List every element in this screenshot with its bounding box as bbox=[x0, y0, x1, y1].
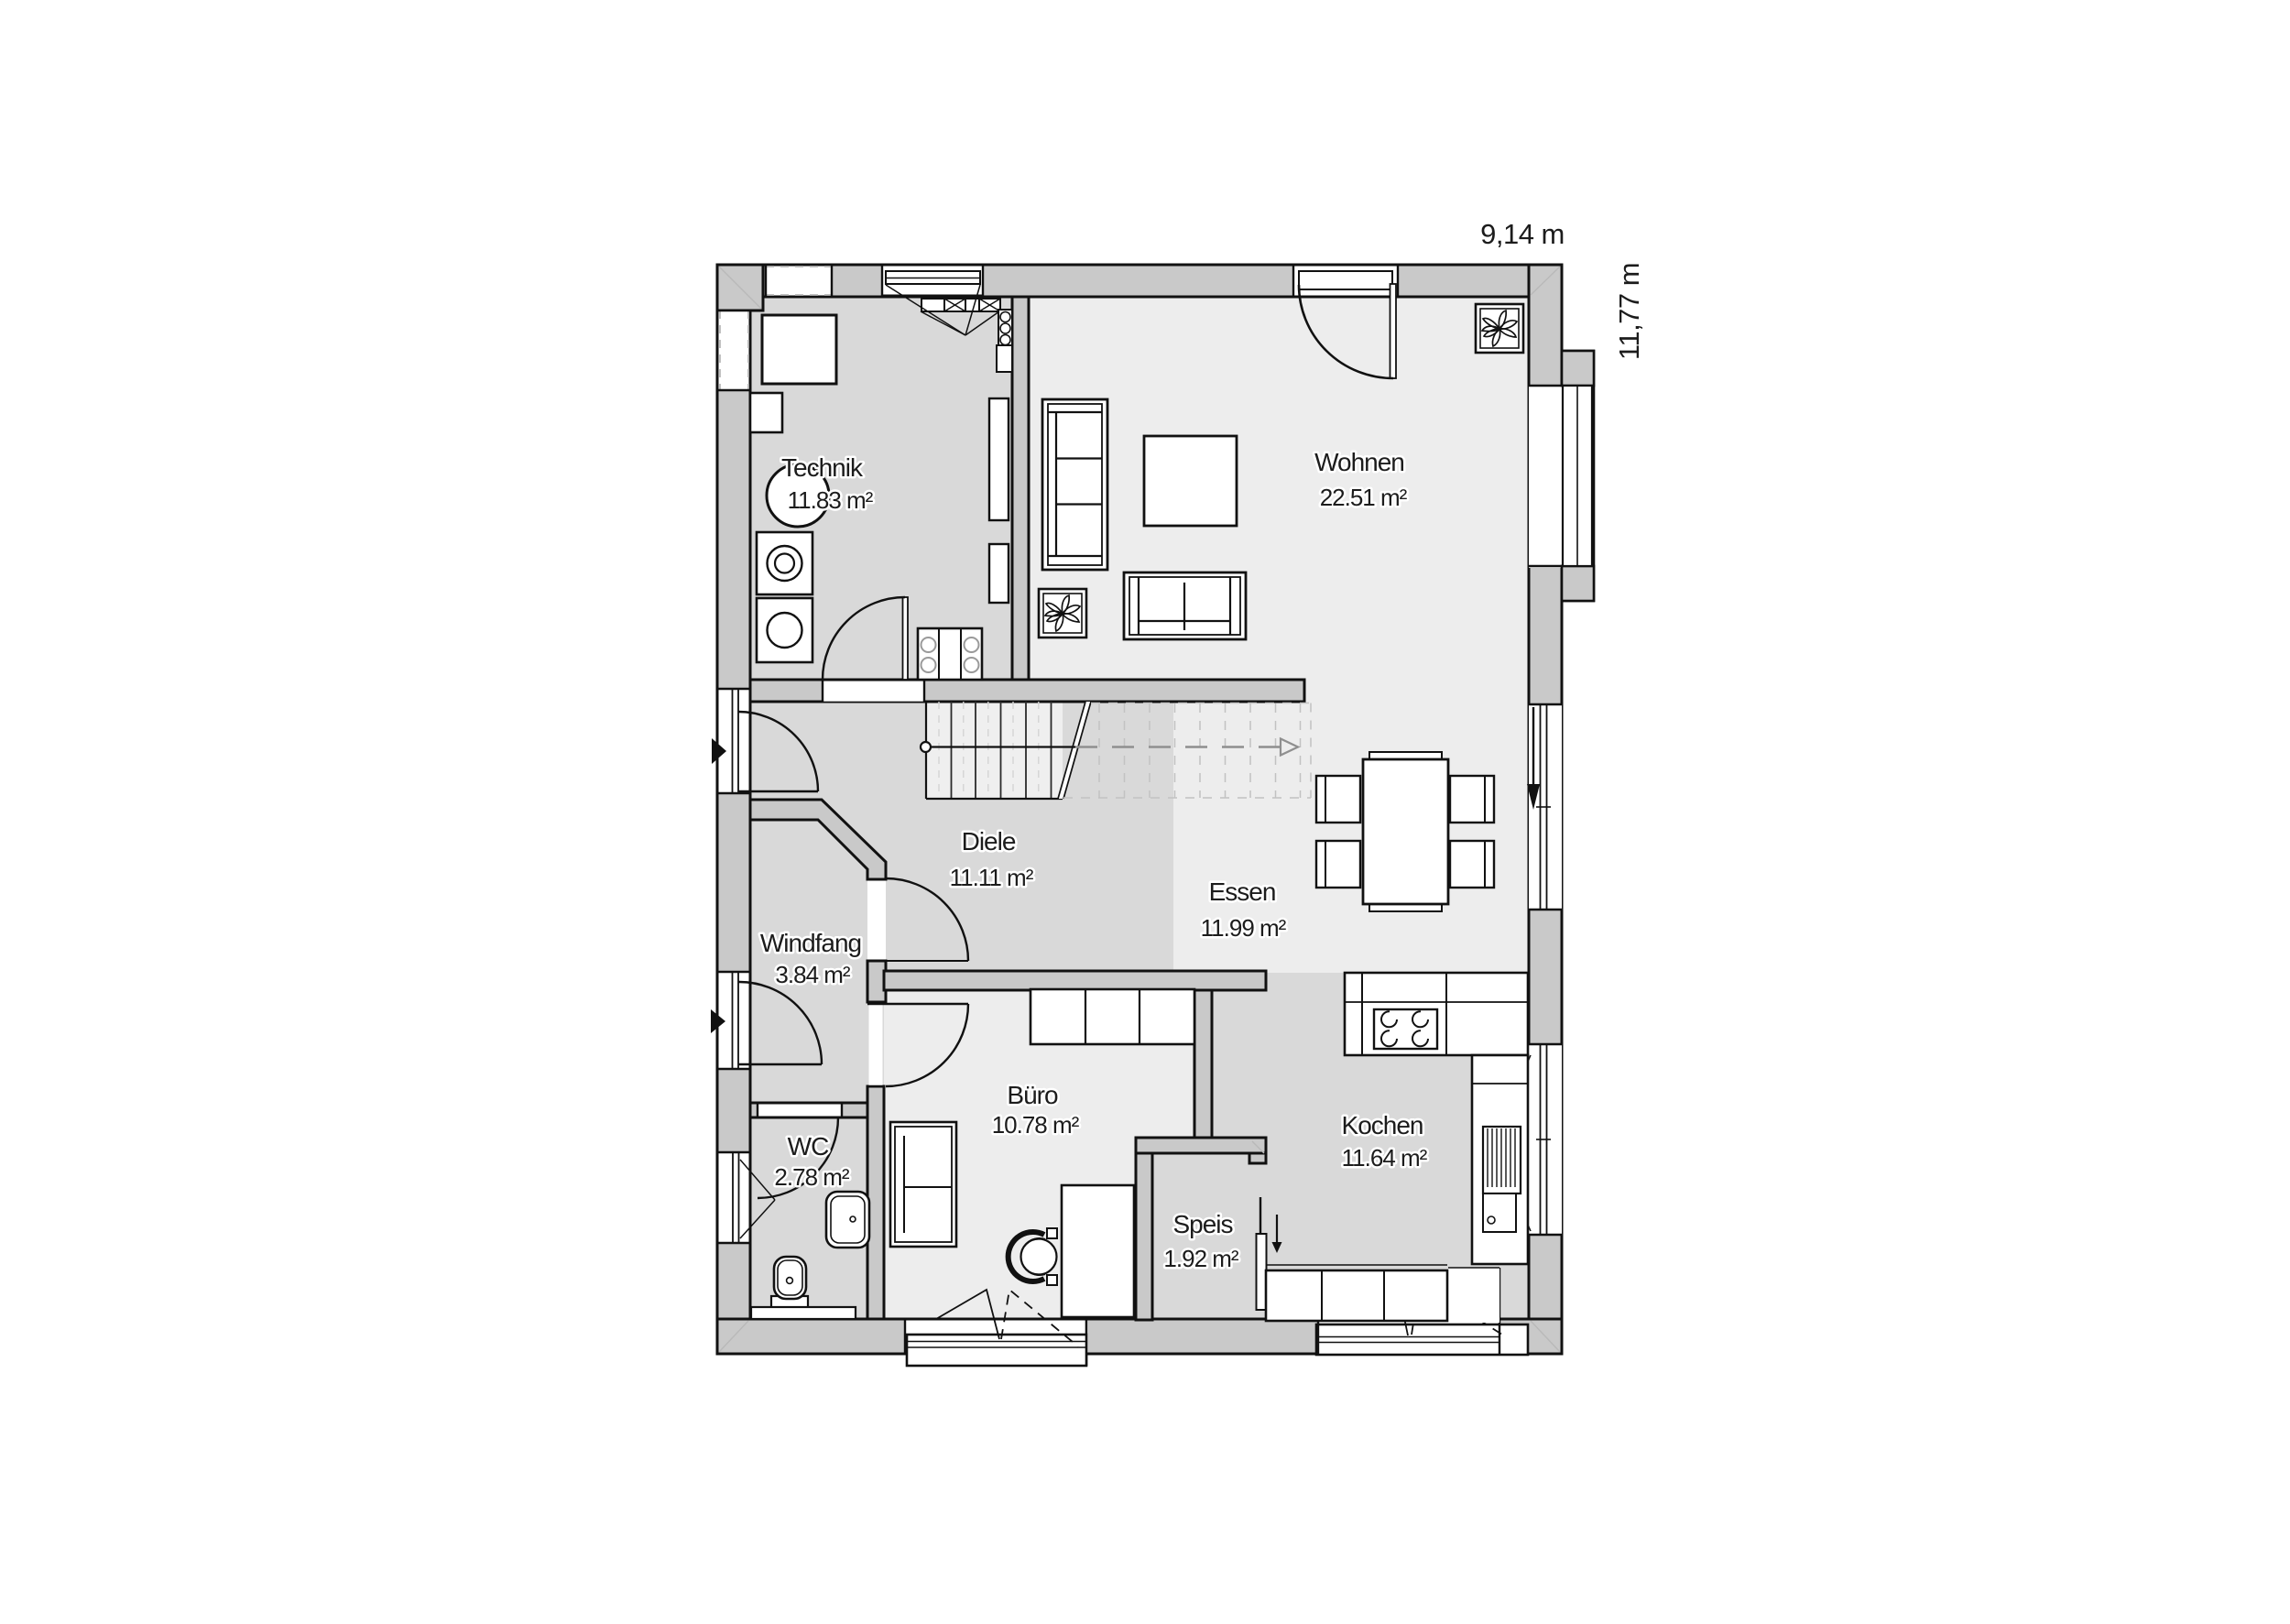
svg-text:11,77 m: 11,77 m bbox=[1613, 263, 1645, 360]
svg-text:WC: WC bbox=[788, 1132, 829, 1161]
svg-text:22.51 m²: 22.51 m² bbox=[1320, 484, 1408, 511]
svg-text:9,14 m: 9,14 m bbox=[1480, 218, 1565, 250]
svg-text:3.84 m²: 3.84 m² bbox=[775, 961, 850, 988]
svg-text:2.78 m²: 2.78 m² bbox=[774, 1163, 849, 1191]
svg-text:10.78 m²: 10.78 m² bbox=[992, 1111, 1080, 1139]
svg-text:Speis: Speis bbox=[1172, 1210, 1232, 1238]
svg-text:Kochen: Kochen bbox=[1342, 1111, 1423, 1139]
svg-text:Essen: Essen bbox=[1209, 877, 1276, 906]
svg-text:11.11 m²: 11.11 m² bbox=[950, 864, 1034, 891]
svg-text:Büro: Büro bbox=[1007, 1081, 1058, 1109]
svg-text:Diele: Diele bbox=[962, 827, 1016, 856]
svg-text:11.99 m²: 11.99 m² bbox=[1201, 914, 1287, 942]
svg-text:11.64 m²: 11.64 m² bbox=[1342, 1144, 1428, 1172]
svg-text:Wohnen: Wohnen bbox=[1314, 448, 1404, 476]
svg-text:11.83 m²: 11.83 m² bbox=[788, 486, 874, 514]
svg-text:1.92 m²: 1.92 m² bbox=[1163, 1245, 1238, 1272]
svg-text:Technik: Technik bbox=[781, 453, 864, 482]
svg-text:Windfang: Windfang bbox=[760, 929, 861, 957]
